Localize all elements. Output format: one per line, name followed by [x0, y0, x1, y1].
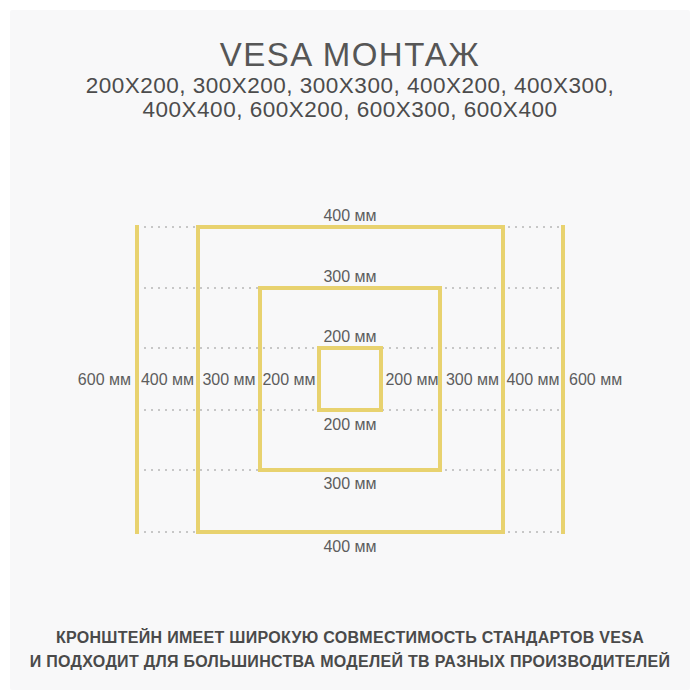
footer-text-line-2: И ПОДХОДИТ ДЛЯ БОЛЬШИНСТВА МОДЕЛЕЙ ТВ РА…	[0, 653, 700, 671]
dim-label-top-300: 300 мм	[290, 267, 410, 287]
dim-label-top-200: 200 мм	[290, 327, 410, 347]
footer-text-line-1: КРОНШТЕЙН ИМЕЕТ ШИРОКУЮ СОВМЕСТИМОСТЬ СТ…	[0, 629, 700, 647]
dim-label-bottom-300: 300 мм	[290, 474, 410, 494]
dim-label-right-400: 400 мм	[504, 370, 562, 390]
dim-label-left-300: 300 мм	[200, 370, 258, 390]
dim-label-bottom-200: 200 мм	[290, 415, 410, 435]
dim-label-right-200: 200 мм	[384, 370, 440, 390]
dim-label-right-600: 600 мм	[569, 370, 662, 390]
dim-label-left-200: 200 мм	[261, 370, 317, 390]
dim-label-right-300: 300 мм	[444, 370, 501, 390]
dim-label-bottom-400: 400 мм	[290, 537, 410, 557]
square-200	[317, 346, 383, 412]
dim-label-left-600: 600 мм	[38, 370, 131, 390]
vesa-infographic: VESA МОНТАЖ 200X200, 300X200, 300X300, 4…	[0, 0, 700, 700]
dim-label-left-400: 400 мм	[139, 370, 196, 390]
vesa-pattern-diagram: 400 мм 300 мм 200 мм 200 мм 300 мм 400 м…	[0, 0, 700, 700]
dim-label-top-400: 400 мм	[290, 206, 410, 226]
